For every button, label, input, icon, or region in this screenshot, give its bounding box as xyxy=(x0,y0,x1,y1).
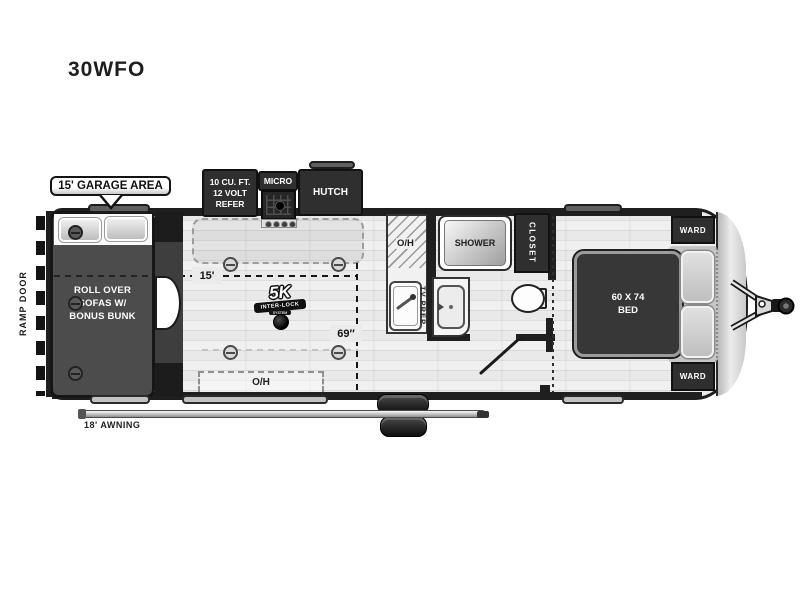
tie-down-anchor-icon xyxy=(223,345,238,360)
ward-label: WARD xyxy=(680,372,706,381)
bedroom-divider-line xyxy=(552,216,554,392)
garage-fold-line xyxy=(54,275,152,277)
bed-size-label: 60 X 74 xyxy=(612,291,645,304)
closet-label: CLOSET xyxy=(528,222,537,263)
hutch: HUTCH xyxy=(298,169,363,216)
toilet xyxy=(511,284,545,313)
awning-end-cap xyxy=(477,411,489,418)
ramp-door-hinge xyxy=(36,216,45,396)
bath-sink xyxy=(437,285,465,329)
bedroom-bottom-window xyxy=(562,395,624,404)
shower-text: SHOWER xyxy=(455,238,496,248)
ward-label: WARD xyxy=(680,226,706,235)
bed-pillow xyxy=(681,251,714,303)
garage-area-callout-text: 15' GARAGE AREA xyxy=(58,180,163,192)
hutch-label: HUTCH xyxy=(313,187,348,198)
wardrobe-bottom: WARD xyxy=(671,362,715,391)
garage-length-dim: 15' xyxy=(192,267,222,284)
micro-label: MICRO xyxy=(264,176,292,186)
tie-down-anchor-icon xyxy=(68,296,83,311)
garage-area-callout: 15' GARAGE AREA xyxy=(50,176,171,196)
wardrobe-top: WARD xyxy=(671,216,715,244)
garage-line-1: ROLL OVER xyxy=(74,284,131,297)
tie-down-anchor-icon xyxy=(331,345,346,360)
refer-line-1: 10 CU. FT. xyxy=(210,177,251,188)
ramp-door-label: RAMP DOOR xyxy=(16,250,30,358)
bath-door-swing xyxy=(470,330,530,380)
interlock-system-badge: 5K INTER-LOCK SYSTEM xyxy=(252,285,308,331)
bunk-pillow xyxy=(105,217,147,241)
tie-down-anchor-icon xyxy=(331,257,346,272)
garage-line-2: SOFAS W/ xyxy=(78,297,126,310)
garage-partition-block xyxy=(155,363,183,397)
bed: 60 X 74 BED xyxy=(574,251,682,357)
bed-label: BED xyxy=(618,304,638,317)
refrigerator: 10 CU. FT. 12 VOLT REFER xyxy=(202,169,258,217)
refer-line-3: REFER xyxy=(216,199,245,210)
callout-pointer-icon xyxy=(96,194,126,211)
trailer-hitch-icon xyxy=(716,266,800,344)
cooktop xyxy=(261,190,296,220)
knob-icon xyxy=(273,221,280,228)
tie-down-anchor-icon xyxy=(68,366,83,381)
knob-icon xyxy=(281,221,288,228)
garage-partition-block xyxy=(155,212,183,242)
burner-icon xyxy=(275,201,285,211)
model-title: 30WFO xyxy=(68,58,145,82)
tie-down-anchor-icon xyxy=(223,257,238,272)
knob-icon xyxy=(265,221,272,228)
knob-icon xyxy=(289,221,296,228)
closet: CLOSET xyxy=(514,213,550,273)
cooktop-knobs xyxy=(261,219,297,228)
shower-label: SHOWER xyxy=(444,220,506,266)
microwave: MICRO xyxy=(258,171,298,191)
wheel xyxy=(380,416,427,437)
bedroom-top-window xyxy=(564,204,622,213)
overhead-cabinet-bottom: O/H xyxy=(198,371,324,392)
bottom-window-marker xyxy=(182,395,328,404)
garage-line-3: BONUS BUNK xyxy=(69,310,135,323)
awning-end-cap xyxy=(78,409,86,419)
bottom-window-marker xyxy=(90,395,150,404)
overhead-label: O/H xyxy=(252,377,270,388)
bedroom-entry-jamb xyxy=(540,385,550,394)
badge-anchor-icon xyxy=(273,314,289,330)
tie-down-anchor-icon xyxy=(68,225,83,240)
awning-label: 18' AWNING xyxy=(84,420,140,430)
overhead-label: O/H xyxy=(396,238,415,249)
floorplan-page: 30WFO O/H 5K INTER-LOCK SYSTEM ROLL OVER… xyxy=(0,0,800,600)
garage-width-dim: 69″ xyxy=(330,325,362,342)
bed-pillow xyxy=(681,306,714,358)
roof-vent-marker xyxy=(309,161,355,169)
awning-bar xyxy=(80,410,486,418)
refer-line-2: 12 VOLT xyxy=(213,188,247,199)
